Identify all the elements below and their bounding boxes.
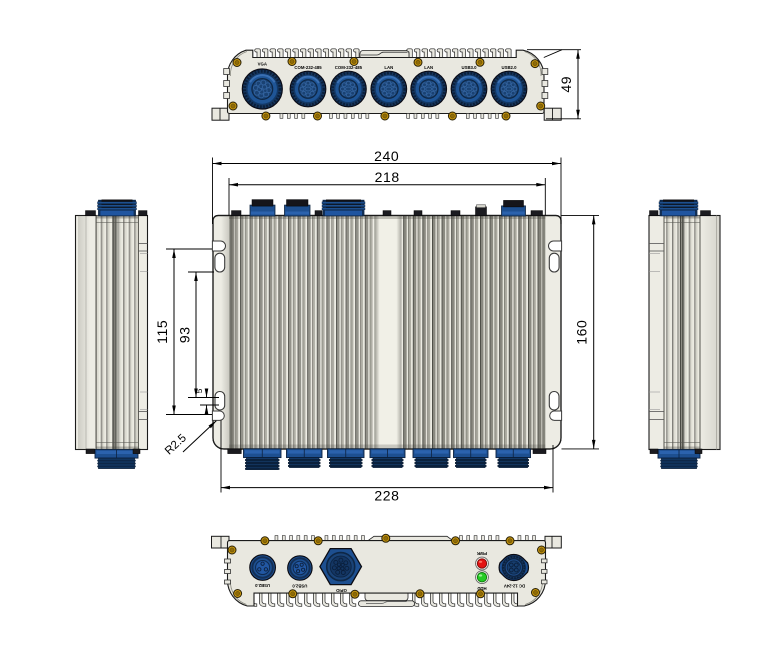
svg-text:VGA: VGA — [258, 62, 267, 67]
svg-text:DC 12-24V: DC 12-24V — [504, 584, 525, 589]
svg-text:COM-232-485: COM-232-485 — [335, 65, 363, 70]
svg-text:5: 5 — [194, 388, 204, 393]
svg-text:49: 49 — [558, 76, 574, 93]
svg-text:93: 93 — [177, 326, 193, 343]
svg-text:USB2.0: USB2.0 — [501, 65, 517, 70]
svg-text:GPIO: GPIO — [335, 588, 346, 593]
svg-text:USB2.0: USB2.0 — [254, 583, 270, 588]
svg-text:228: 228 — [374, 488, 399, 504]
svg-text:218: 218 — [375, 169, 400, 185]
svg-text:160: 160 — [574, 320, 590, 345]
svg-text:LAN: LAN — [384, 65, 393, 70]
svg-text:LAN: LAN — [424, 65, 433, 70]
svg-text:USB2.0: USB2.0 — [292, 583, 308, 588]
svg-text:USB3.0: USB3.0 — [461, 65, 477, 70]
svg-text:115: 115 — [154, 320, 170, 344]
svg-text:COM-232-485: COM-232-485 — [294, 65, 322, 70]
svg-text:240: 240 — [374, 148, 399, 164]
svg-text:PWR: PWR — [476, 551, 487, 556]
